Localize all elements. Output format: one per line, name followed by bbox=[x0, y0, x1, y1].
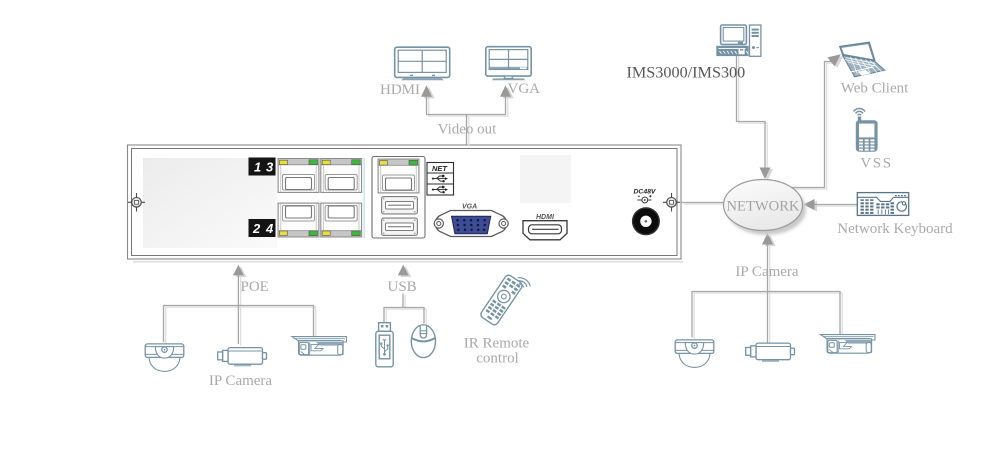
svg-text:2: 2 bbox=[252, 221, 261, 236]
svg-text:3: 3 bbox=[266, 160, 274, 175]
svg-text:VSS: VSS bbox=[860, 156, 892, 172]
svg-text:IMS3000/IMS300: IMS3000/IMS300 bbox=[627, 64, 746, 82]
svg-text:HDMI: HDMI bbox=[380, 82, 420, 98]
svg-text:4: 4 bbox=[265, 221, 274, 236]
svg-text:Network Keyboard: Network Keyboard bbox=[837, 221, 953, 237]
svg-text:POE: POE bbox=[241, 279, 269, 295]
svg-text:DC48V: DC48V bbox=[634, 189, 657, 196]
svg-text:VGA: VGA bbox=[508, 81, 541, 97]
svg-text:Web Client: Web Client bbox=[841, 81, 909, 97]
svg-text:NET: NET bbox=[432, 164, 448, 173]
svg-text:1: 1 bbox=[254, 160, 261, 175]
svg-text:VGA: VGA bbox=[462, 204, 477, 211]
svg-text:IP Camera: IP Camera bbox=[209, 373, 273, 389]
svg-text:USB: USB bbox=[388, 279, 417, 295]
svg-text:control: control bbox=[476, 351, 519, 367]
svg-text:IR Remote: IR Remote bbox=[464, 336, 530, 352]
svg-text:IP Camera: IP Camera bbox=[735, 264, 799, 280]
svg-text:NETWORK: NETWORK bbox=[727, 199, 800, 215]
svg-text:Video out: Video out bbox=[438, 122, 498, 138]
svg-text:HDMI: HDMI bbox=[536, 214, 555, 221]
